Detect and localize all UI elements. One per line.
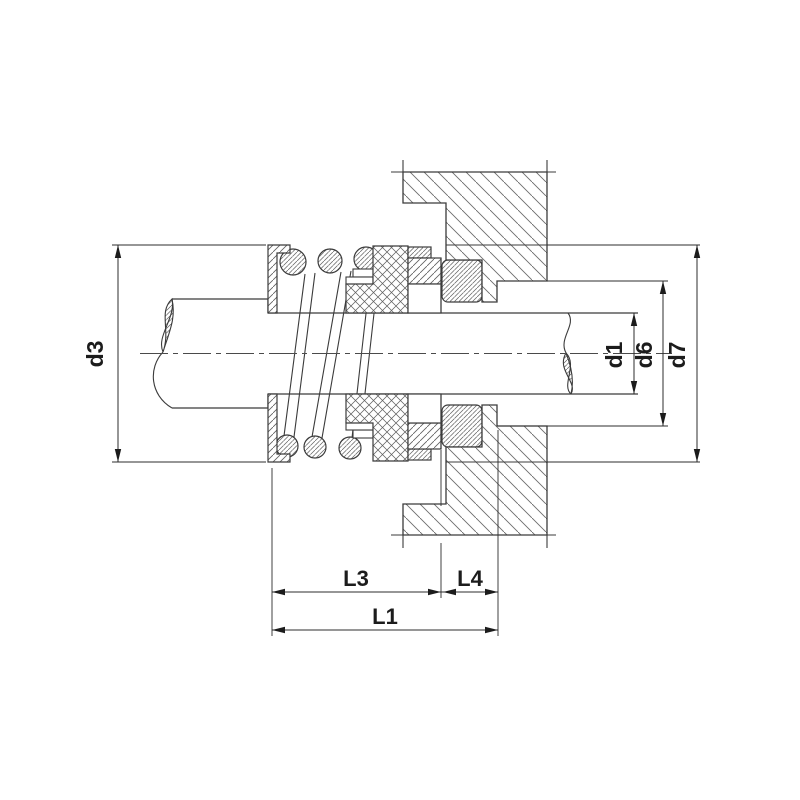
spring-wire-section [304,436,326,458]
dimension-label-L4: L4 [457,566,483,591]
mechanical-seal-section-drawing: d3 d1 d6 d7 L3 L4 L1 [0,0,800,800]
dimension-label-d1: d1 [601,341,627,368]
dimension-label-d6: d6 [631,342,657,369]
technical-drawing-canvas: d3 d1 d6 d7 L3 L4 L1 [0,0,800,800]
dimension-label-L1: L1 [372,604,398,629]
spring-wire-section [339,437,361,459]
dimension-label-d7: d7 [664,342,690,369]
dimension-label-L3: L3 [343,566,369,591]
spring-wire-section [318,249,342,273]
dimension-label-d3: d3 [82,341,108,368]
